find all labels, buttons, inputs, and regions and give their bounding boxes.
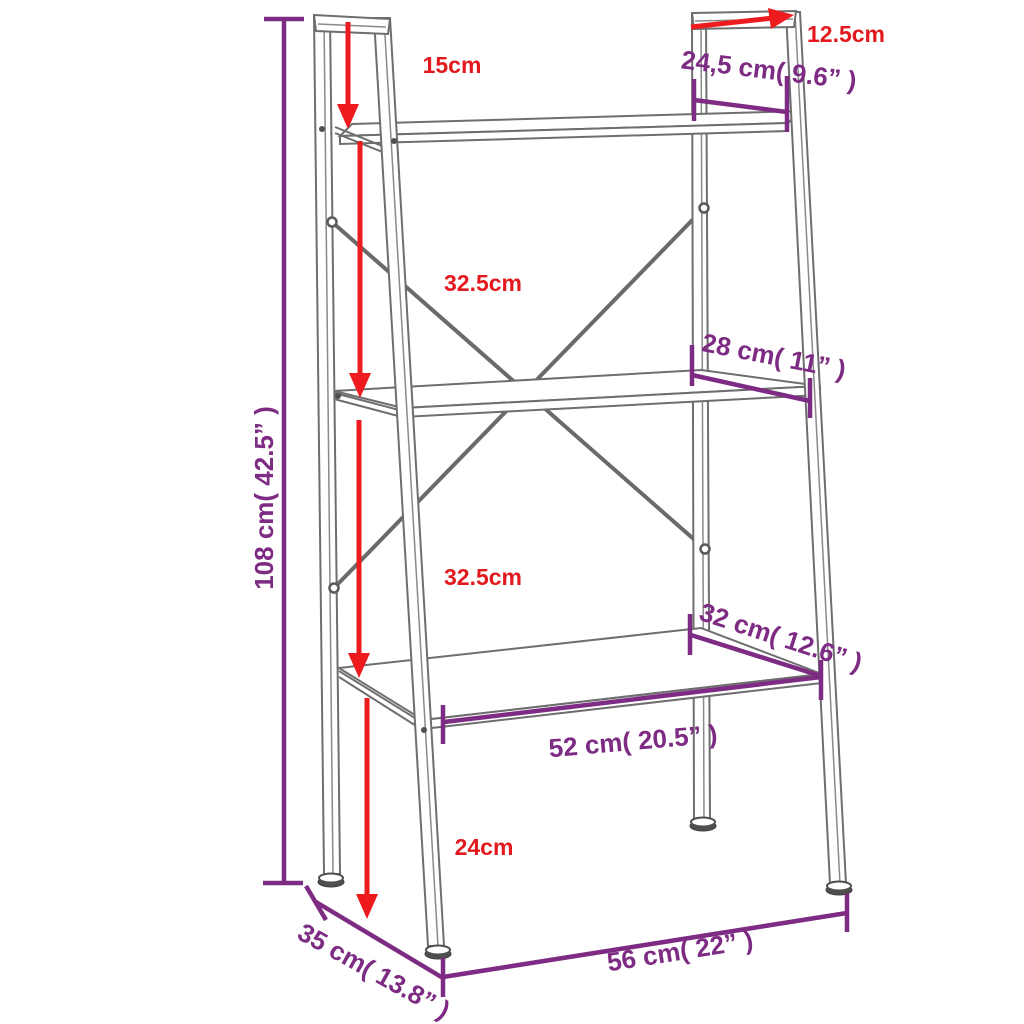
dimension-labels: 15cm 12.5cm 32.5cm 32.5cm 24cm 108 cm( 4… (249, 21, 885, 1024)
brace-screw-upper-left (328, 218, 337, 227)
brace-screw-lower-left (330, 584, 339, 593)
foot-back-left (318, 874, 344, 888)
shelf-screw-bottom (421, 727, 427, 733)
arrow-bottom-clearance (356, 698, 378, 919)
shelf-screw-top-back (319, 126, 325, 132)
dim-label-bottom-clearance: 24cm (455, 834, 514, 860)
dim-label-lower-shelf-spacing: 32.5cm (444, 564, 522, 590)
shelf-screw-middle (335, 393, 341, 399)
front-left-post (374, 18, 444, 946)
brace-screw-upper-right (700, 204, 709, 213)
foot-front-left (425, 946, 451, 960)
shelf-screw-top-front (391, 138, 397, 144)
back-left-post (314, 16, 340, 874)
front-right-post-edge (795, 12, 840, 884)
foot-back-right (690, 818, 716, 832)
arrow-top-clearance (337, 22, 359, 129)
dim-label-top-clearance: 15cm (423, 52, 482, 78)
brace-screw-lower-right (701, 545, 710, 554)
dim-label-base-width: 56 cm( 22” ) (605, 925, 755, 978)
arrow-lower-shelf-spacing (348, 420, 370, 678)
arrow-upper-shelf-spacing (349, 141, 371, 398)
front-left-post-edge (384, 18, 438, 946)
ladder-shelf-dimension-diagram: 15cm 12.5cm 32.5cm 32.5cm 24cm 108 cm( 4… (0, 0, 1024, 1024)
dim-label-top-rail: 12.5cm (807, 21, 885, 47)
dim-label-upper-shelf-spacing: 32.5cm (444, 270, 522, 296)
front-right-post (786, 12, 846, 884)
purple-dimension-lines (263, 19, 847, 997)
dim-label-total-height: 108 cm( 42.5” ) (249, 406, 279, 590)
diagram-canvas: 15cm 12.5cm 32.5cm 32.5cm 24cm 108 cm( 4… (0, 0, 1024, 1024)
foot-front-right (826, 882, 852, 896)
ladder-shelf-line-art (314, 11, 852, 959)
